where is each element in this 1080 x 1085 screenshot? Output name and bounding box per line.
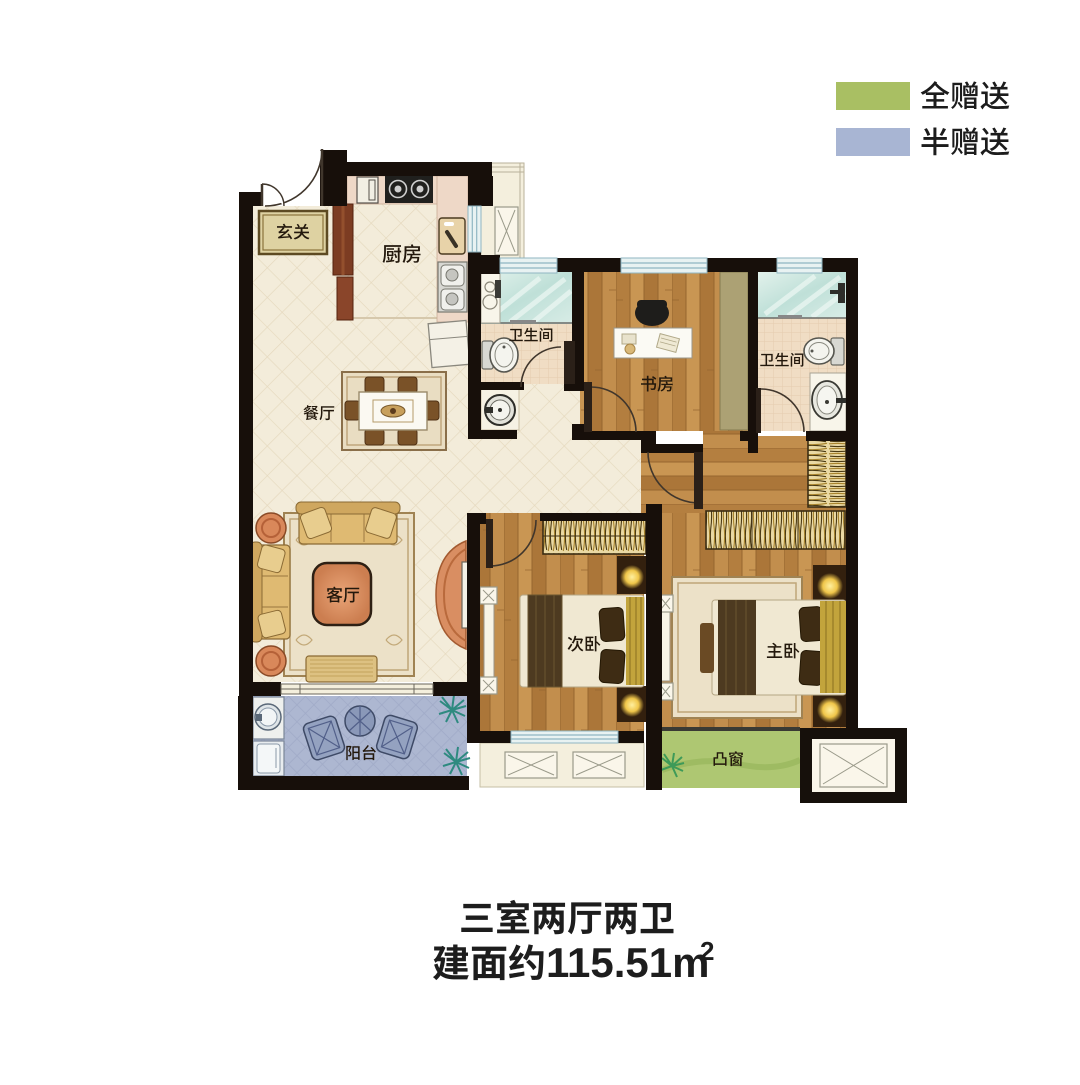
- svg-text:115.51m: 115.51m: [546, 939, 710, 986]
- svg-text:2: 2: [700, 936, 714, 966]
